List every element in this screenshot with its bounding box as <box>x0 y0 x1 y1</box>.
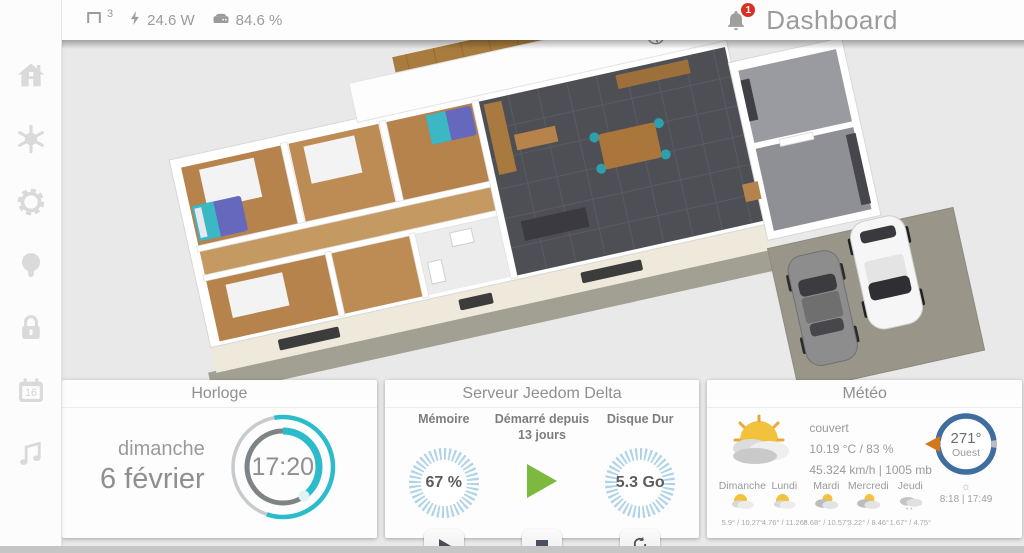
sun-cloud-icon <box>729 492 755 517</box>
topbar: 3 24.6 W 84.6 % 1 Dashboard <box>62 0 1024 40</box>
nas-drive-icon <box>209 8 233 32</box>
devices-status: 3 <box>84 8 113 32</box>
disk-usage-value: 84.6 % <box>236 12 283 29</box>
weather-wind-pressure: 45.324 km/h | 1005 mb <box>809 460 932 481</box>
memory-gauge: 67 % <box>407 446 481 520</box>
weather-temp-humidity: 10.19 °C / 83 % <box>809 439 932 460</box>
lightning-bolt-icon <box>127 8 144 32</box>
lightbulb-icon <box>14 248 48 287</box>
device-screen-icon <box>84 8 104 32</box>
wind-compass: 271° Ouest ☼ 8:18 | 17:49 <box>928 410 1004 505</box>
devices-count: 3 <box>107 8 113 20</box>
cloud-sun-icon <box>813 492 839 517</box>
forecast-day: Mercredi 3.22° / 8.46° <box>847 480 889 527</box>
sidebar: 16 <box>0 0 62 546</box>
sidebar-item-summary[interactable] <box>13 123 49 159</box>
calendar-day-number: 16 <box>25 387 37 399</box>
topbar-status-group: 3 24.6 W 84.6 % <box>84 8 292 32</box>
dashboard-page: 16 3 24.6 W <box>0 0 1024 553</box>
notification-badge: 1 <box>741 3 755 17</box>
sunrise-sunset-icon: ☼ <box>928 482 1004 492</box>
uptime-label: Démarré depuis 13 jours <box>495 412 589 444</box>
home-icon <box>14 59 48 98</box>
widget-horloge: Horloge dimanche 6 février 17:20 <box>62 380 377 538</box>
disk-status: 84.6 % <box>209 8 283 32</box>
wind-direction-label: Ouest <box>952 447 980 459</box>
sidebar-item-home[interactable] <box>13 60 49 96</box>
bottom-strip <box>0 546 1024 553</box>
meteo-title: Météo <box>707 380 1022 408</box>
sidebar-item-settings[interactable] <box>13 186 49 222</box>
calendar-icon: 16 <box>14 374 48 413</box>
analog-clock-ring: 17:20 <box>227 411 339 523</box>
wind-arrow-icon <box>925 436 940 452</box>
clock-date: 6 février <box>100 463 205 496</box>
forecast-day: Lundi 4.76° / 11.26° <box>763 480 805 527</box>
power-value: 24.6 W <box>147 12 195 29</box>
horloge-title: Horloge <box>62 380 377 408</box>
disk-value: 5.3 Go <box>603 446 677 520</box>
bell-icon <box>724 20 748 37</box>
widget-row: Horloge dimanche 6 février 17:20 <box>62 380 1022 538</box>
sun-cloud-icon <box>771 492 797 517</box>
sidebar-item-music[interactable] <box>13 438 49 474</box>
clock-time: 17:20 <box>227 411 339 523</box>
forecast-row: Dimanche 5.9° / 10.27° Lundi 4.76° / 11.… <box>721 480 931 527</box>
lock-icon <box>14 311 48 350</box>
sidebar-item-security[interactable] <box>13 312 49 348</box>
uptime-value: 13 jours <box>518 428 566 442</box>
gear-icon <box>14 185 48 224</box>
forecast-day: Dimanche 5.9° / 10.27° <box>721 480 763 527</box>
weather-sun-cloud-icon <box>725 414 797 479</box>
cloud-snow-icon <box>897 492 923 517</box>
topbar-right-group: 1 Dashboard <box>724 5 898 36</box>
sunrise-sunset-times: 8:18 | 17:49 <box>928 494 1004 505</box>
serveur-title: Serveur Jeedom Delta <box>385 380 700 408</box>
memory-value: 67 % <box>407 446 481 520</box>
topbar-shadow <box>62 40 1024 49</box>
notifications-button[interactable]: 1 <box>724 7 750 33</box>
power-status: 24.6 W <box>127 8 195 32</box>
page-title: Dashboard <box>766 5 898 36</box>
forecast-day: Jeudi 1.67° / 4.75° <box>889 480 931 527</box>
memory-label: Mémoire <box>418 412 469 444</box>
cloud-sun-icon <box>855 492 881 517</box>
widget-meteo: Météo couvert <box>707 380 1022 538</box>
widget-serveur: Serveur Jeedom Delta Mémoire 67 % <box>385 380 700 538</box>
server-running-icon <box>527 464 557 498</box>
forecast-day: Mardi 8.68° / 10.57° <box>805 480 847 527</box>
wind-direction-degrees: 271° <box>951 430 982 447</box>
disk-label: Disque Dur <box>607 412 674 444</box>
clock-weekday: dimanche <box>100 438 205 461</box>
floor-plan-3d[interactable] <box>62 40 1024 385</box>
sidebar-item-lights[interactable] <box>13 249 49 285</box>
star-burst-icon <box>14 122 48 161</box>
music-note-icon <box>14 437 48 476</box>
sidebar-item-calendar[interactable]: 16 <box>13 375 49 411</box>
disk-gauge: 5.3 Go <box>603 446 677 520</box>
weather-condition: couvert <box>809 418 932 439</box>
